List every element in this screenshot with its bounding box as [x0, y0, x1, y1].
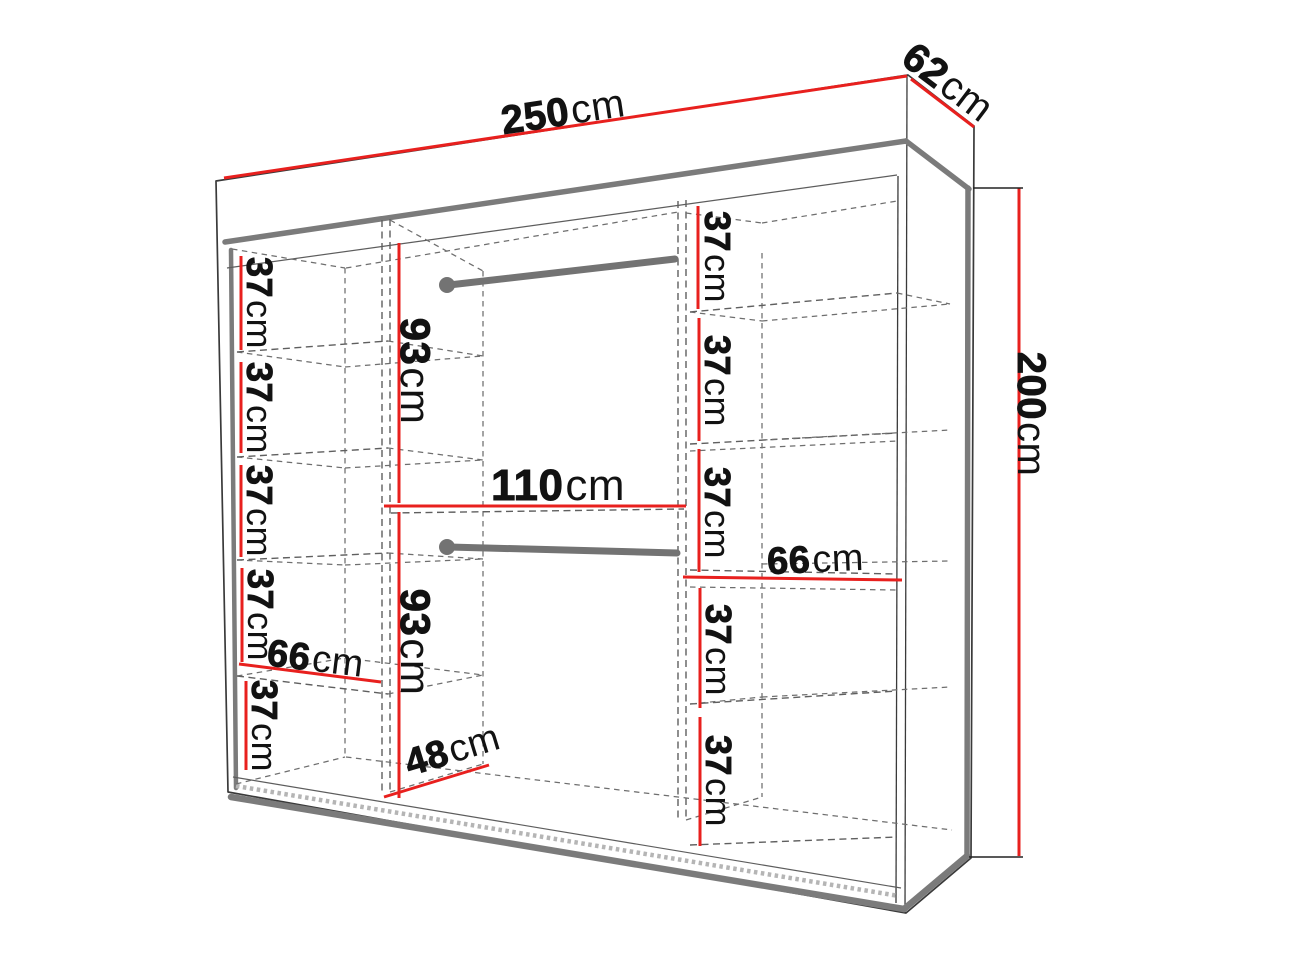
- diagram-canvas: 250cm 62cm 200cm 37cm 37cm 37cm 37cm 37c…: [0, 0, 1300, 975]
- label-left-shelf-3: 37cm: [239, 465, 280, 557]
- label-right-shelf-5: 37cm: [698, 735, 739, 827]
- wardrobe-dimension-diagram: 250cm 62cm 200cm 37cm 37cm 37cm 37cm 37c…: [0, 0, 1300, 975]
- rail-end-cap-top: [439, 277, 455, 293]
- label-right-shelf-4: 37cm: [698, 604, 739, 696]
- label-left-shelf-1: 37cm: [239, 257, 280, 349]
- label-left-shelf-2: 37cm: [239, 362, 280, 454]
- label-right-66cm: 66cm: [766, 537, 865, 583]
- label-left-shelf-5: 37cm: [244, 680, 285, 772]
- rail-end-cap-bottom: [439, 539, 455, 555]
- label-hanging-top-93cm: 93cm: [392, 318, 439, 425]
- label-right-shelf-2: 37cm: [697, 335, 738, 427]
- label-right-shelf-1: 37cm: [697, 211, 738, 303]
- label-height-200cm: 200cm: [1009, 352, 1053, 477]
- label-right-shelf-3: 37cm: [697, 467, 738, 559]
- label-hanging-bottom-93cm: 93cm: [392, 589, 439, 696]
- label-middle-110cm: 110cm: [491, 461, 625, 510]
